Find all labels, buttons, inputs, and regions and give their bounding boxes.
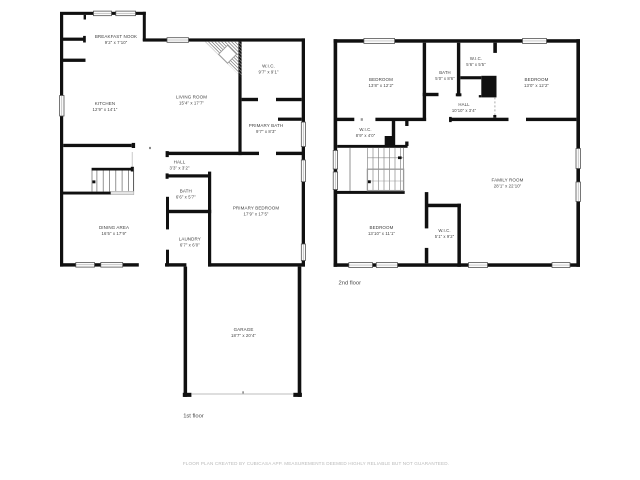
svg-text:18’7” x 20’4”: 18’7” x 20’4” xyxy=(231,333,256,338)
svg-text:13’8” x 12’2”: 13’8” x 12’2” xyxy=(369,83,394,88)
svg-text:6’6” x 5’7”: 6’6” x 5’7” xyxy=(176,195,196,200)
svg-text:5’6” x 5’5”: 5’6” x 5’5” xyxy=(466,62,486,67)
svg-text:LIVING ROOM: LIVING ROOM xyxy=(176,94,207,99)
svg-text:BATH: BATH xyxy=(439,70,451,75)
svg-text:W.I.C.: W.I.C. xyxy=(359,127,371,132)
svg-text:FLOOR PLAN CREATED BY CUBICASA: FLOOR PLAN CREATED BY CUBICASA APP. MEAS… xyxy=(183,461,449,466)
svg-text:W.I.C.: W.I.C. xyxy=(470,56,482,61)
svg-text:PRIMARY BEDROOM: PRIMARY BEDROOM xyxy=(233,206,279,211)
svg-text:12’9” x 14’1”: 12’9” x 14’1” xyxy=(93,107,118,112)
svg-text:8’9” x 4’0”: 8’9” x 4’0” xyxy=(356,133,376,138)
svg-text:HALL: HALL xyxy=(458,102,470,107)
svg-text:13’0” x 12’2”: 13’0” x 12’2” xyxy=(524,83,549,88)
svg-text:13’10” x 11’1”: 13’10” x 11’1” xyxy=(368,231,396,236)
svg-text:FAMILY ROOM: FAMILY ROOM xyxy=(492,178,524,183)
svg-text:2nd floor: 2nd floor xyxy=(339,281,362,287)
svg-text:GARAGE: GARAGE xyxy=(234,327,254,332)
svg-text:KITCHEN: KITCHEN xyxy=(95,101,115,106)
svg-text:10’10” x 3’4”: 10’10” x 3’4” xyxy=(452,108,477,113)
svg-text:9’2” x 7’10”: 9’2” x 7’10” xyxy=(105,40,128,45)
svg-text:PRIMARY BATH: PRIMARY BATH xyxy=(249,123,283,128)
svg-text:DINING AREA: DINING AREA xyxy=(99,225,129,230)
svg-text:BEDROOM: BEDROOM xyxy=(370,225,394,230)
svg-text:BREAKFAST NOOK: BREAKFAST NOOK xyxy=(95,34,137,39)
svg-text:W.I.C.: W.I.C. xyxy=(438,228,450,233)
svg-text:28’1” x 22’10”: 28’1” x 22’10” xyxy=(494,184,522,189)
svg-text:9’7” x 8’3”: 9’7” x 8’3” xyxy=(256,129,276,134)
svg-text:1st floor: 1st floor xyxy=(183,413,204,419)
svg-text:BEDROOM: BEDROOM xyxy=(369,77,393,82)
svg-text:9’7” x 9’1”: 9’7” x 9’1” xyxy=(259,70,279,75)
svg-text:6’7” x 6’0”: 6’7” x 6’0” xyxy=(180,243,200,248)
svg-text:HALL: HALL xyxy=(174,160,186,165)
svg-text:17’9” x 17’5”: 17’9” x 17’5” xyxy=(244,212,269,217)
svg-text:BEDROOM: BEDROOM xyxy=(525,77,549,82)
svg-text:15’4” x 17’7”: 15’4” x 17’7” xyxy=(179,100,204,105)
svg-text:W.I.C.: W.I.C. xyxy=(262,64,275,69)
svg-text:5’1” x 9’2”: 5’1” x 9’2” xyxy=(435,234,455,239)
svg-text:16’5” x 17’9”: 16’5” x 17’9” xyxy=(102,231,127,236)
svg-text:3’3” x 3’2”: 3’3” x 3’2” xyxy=(170,166,190,171)
svg-text:5’0” x 8’6”: 5’0” x 8’6” xyxy=(435,76,455,81)
svg-text:LAUNDRY: LAUNDRY xyxy=(179,237,201,242)
svg-text:BATH: BATH xyxy=(180,189,192,194)
